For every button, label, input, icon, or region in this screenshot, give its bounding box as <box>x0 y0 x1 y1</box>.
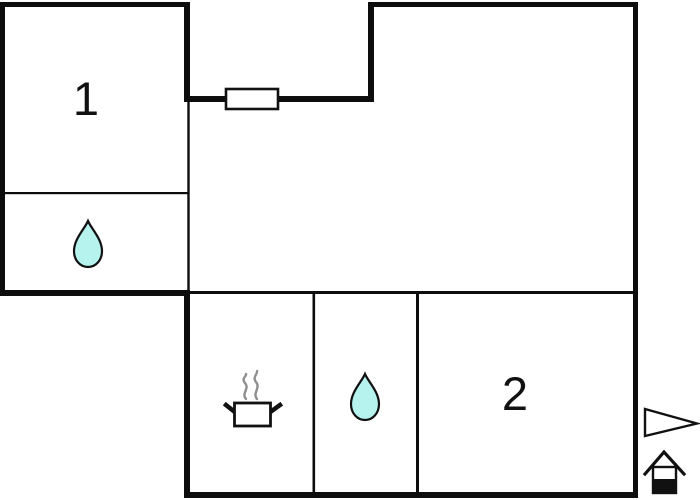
cooking-pot-icon <box>226 371 280 426</box>
room-1-label: 1 <box>73 72 99 125</box>
steam-line <box>255 371 258 399</box>
wall-bath-room2-divider <box>416 294 419 492</box>
water-drop-icon <box>351 374 379 420</box>
wall-top-left-wing <box>0 2 190 7</box>
wall-vertical-notch-left <box>184 2 190 102</box>
steam-line <box>244 374 247 399</box>
house-body-lower-half <box>653 479 676 493</box>
wall-livingroom-bottom-divider <box>187 291 633 294</box>
wall-leftwing-livingroom-divider <box>187 100 189 292</box>
floorplan-drawing: 1 2 <box>0 0 700 500</box>
water-drop-icon <box>74 221 102 267</box>
wall-left-exterior <box>0 2 5 296</box>
entrance-house-icon <box>645 452 684 493</box>
room-2-label: 2 <box>502 367 528 420</box>
pot-body <box>235 403 271 426</box>
floorplan-canvas: 1 2 <box>0 0 700 500</box>
wall-left-bottom-section <box>184 290 190 498</box>
wall-bottom-exterior <box>184 492 638 498</box>
wall-kitchen-bath-divider <box>313 294 316 492</box>
wall-right-exterior <box>633 2 638 498</box>
wall-vertical-notch-right <box>368 2 374 102</box>
wall-room1-bath-divider <box>2 192 188 194</box>
wall-top-right-section <box>368 2 638 7</box>
direction-arrow-icon <box>645 409 697 436</box>
window-symbol <box>226 89 278 109</box>
wall-bottom-left-wing <box>0 290 190 296</box>
